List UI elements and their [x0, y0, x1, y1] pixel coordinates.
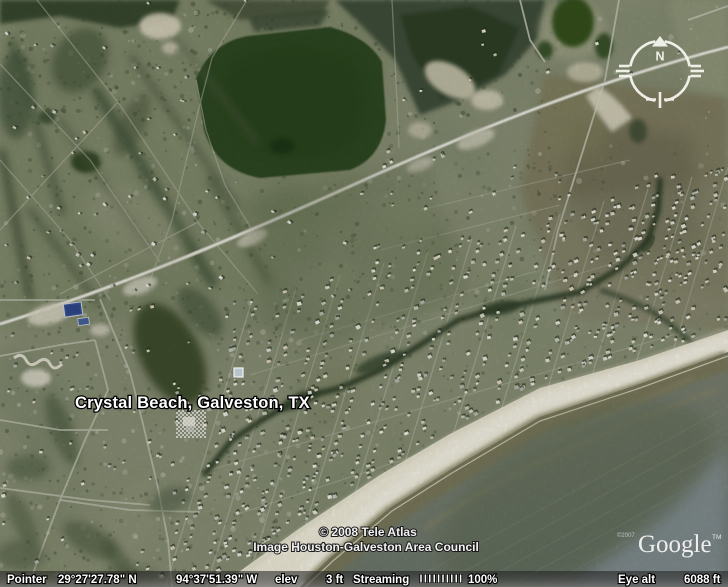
svg-text:Pointer: Pointer [7, 574, 47, 586]
svg-text:Streaming: Streaming [353, 574, 409, 586]
svg-text:6088 ft: 6088 ft [684, 574, 721, 586]
svg-text:Crystal Beach, Galveston, TX: Crystal Beach, Galveston, TX [75, 394, 310, 412]
svg-text:N: N [655, 50, 664, 64]
svg-text:100%: 100% [468, 574, 497, 586]
svg-text:Image Houston-Galveston Area C: Image Houston-Galveston Area Council [253, 540, 479, 554]
svg-text:29°27'27.78" N: 29°27'27.78" N [58, 574, 137, 586]
svg-text:3 ft: 3 ft [326, 574, 343, 586]
svg-text:Google: Google [638, 531, 712, 558]
svg-text:©2007: ©2007 [617, 532, 635, 539]
svg-text:elev: elev [275, 574, 298, 586]
svg-text:94°37'51.39" W: 94°37'51.39" W [176, 574, 257, 586]
svg-text:TM: TM [712, 534, 721, 541]
svg-text:© 2008 Tele Atlas: © 2008 Tele Atlas [319, 525, 417, 539]
svg-text:Eye alt: Eye alt [618, 574, 655, 586]
